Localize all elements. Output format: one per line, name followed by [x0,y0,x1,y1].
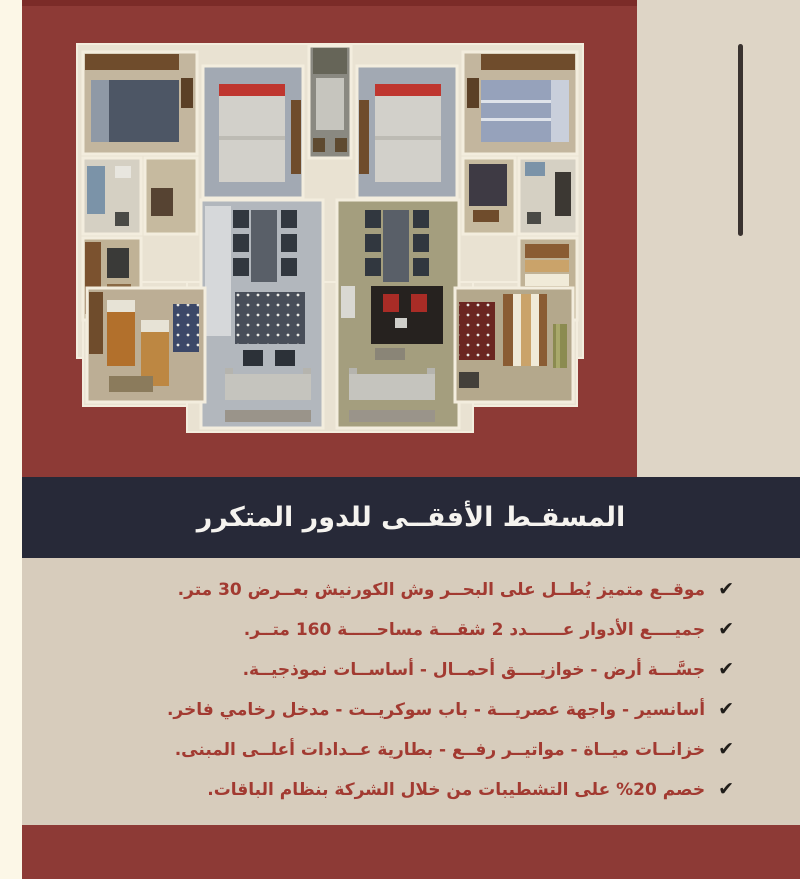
floor-plan-panel [22,0,637,477]
bedroom-right [357,66,457,198]
features-list: ✔ موقــع متميز يُطــل على البحــر وش الك… [22,558,800,825]
bedroom-top-left [83,52,197,154]
feature-text: خصم 20% على التشطيبات من خلال الشركة بنظ… [207,780,705,800]
feature-item: ✔ خصم 20% على التشطيبات من خلال الشركة ب… [34,770,734,810]
right-margin-column [637,0,800,477]
page-title: المسقـط الأفقــى للدور المتكرر [197,502,626,533]
feature-text: أسانسير - واجهة عصريـــة - باب سوكريــت … [167,700,705,720]
living-room-left [201,200,323,428]
feature-item: ✔ جسَّـــة أرض - خوازيــــق أحمــال - أس… [34,650,734,690]
feature-text: جسَّـــة أرض - خوازيــــق أحمــال - أساس… [243,660,706,680]
title-bar: المسقـط الأفقــى للدور المتكرر [22,477,800,558]
feature-item: ✔ خزانــات ميــاة - مواتيــر رفــع - بطا… [34,730,734,770]
feature-text: جميــــع الأدوار عــــــدد 2 شقـــة مساح… [244,620,705,640]
bedroom-left [203,66,303,198]
check-icon: ✔ [718,618,734,640]
feature-item: ✔ جميــــع الأدوار عــــــدد 2 شقـــة مس… [34,610,734,650]
check-icon: ✔ [718,778,734,800]
real-estate-flyer: المسقـط الأفقــى للدور المتكرر ✔ موقــع … [0,0,800,879]
bathroom-right [519,158,577,234]
check-icon: ✔ [718,738,734,760]
check-icon: ✔ [718,578,734,600]
kids-bedroom-left [87,288,205,402]
vertical-rule-decoration [738,44,743,236]
living-room-right [337,200,459,428]
hall-left [145,158,197,234]
check-icon: ✔ [718,698,734,720]
bathroom-left [83,158,141,234]
hall-right [463,158,515,234]
feature-text: خزانــات ميــاة - مواتيــر رفــع - بطاري… [175,740,705,760]
feature-item: ✔ موقــع متميز يُطــل على البحــر وش الك… [34,570,734,610]
floor-plan-image [75,42,585,434]
feature-item: ✔ أسانسير - واجهة عصريـــة - باب سوكريــ… [34,690,734,730]
floor-plan-3d-render [75,42,585,434]
bedroom-top-right [463,52,577,154]
bedroom-bottom-right [455,288,573,402]
check-icon: ✔ [718,658,734,680]
feature-text: موقــع متميز يُطــل على البحــر وش الكور… [178,580,705,600]
bottom-maroon-bar [22,825,800,879]
panel-top-strip [22,0,637,6]
stair-elevator-core [309,46,351,158]
